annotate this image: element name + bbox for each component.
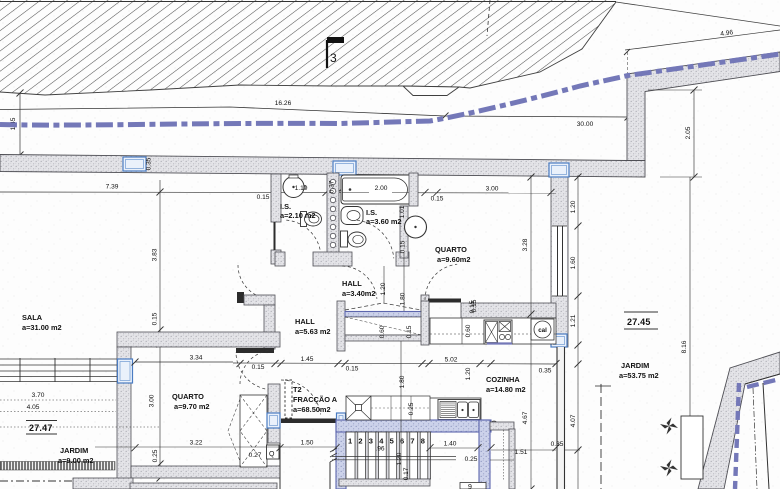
svg-text:1.45: 1.45 <box>301 356 314 363</box>
svg-text:0.25: 0.25 <box>465 456 478 463</box>
svg-text:a=2.10 m2: a=2.10 m2 <box>280 211 316 220</box>
svg-text:2.00: 2.00 <box>375 185 388 192</box>
svg-text:HALL: HALL <box>295 317 315 326</box>
svg-text:3.83: 3.83 <box>152 248 159 261</box>
svg-text:0.25: 0.25 <box>408 402 415 415</box>
svg-text:1.20: 1.20 <box>396 452 403 465</box>
svg-text:4.05: 4.05 <box>27 404 40 411</box>
svg-text:a=9.70 m2: a=9.70 m2 <box>174 402 210 411</box>
svg-text:8.16: 8.16 <box>681 340 688 353</box>
svg-text:0.27: 0.27 <box>249 452 262 459</box>
svg-text:9: 9 <box>468 484 472 489</box>
svg-text:a=9.00 m2: a=9.00 m2 <box>58 456 94 465</box>
svg-text:1.20: 1.20 <box>380 282 387 295</box>
svg-text:1.10: 1.10 <box>295 185 308 192</box>
svg-text:27.47: 27.47 <box>29 423 53 433</box>
svg-text:JARDIM: JARDIM <box>60 446 88 455</box>
svg-text:3: 3 <box>330 51 337 65</box>
svg-text:COZINHA: COZINHA <box>486 375 520 384</box>
svg-text:FRACÇÃO A: FRACÇÃO A <box>293 395 338 404</box>
svg-text:0.35: 0.35 <box>551 441 564 448</box>
svg-text:3.70: 3.70 <box>32 392 45 399</box>
svg-text:0.25: 0.25 <box>152 449 159 462</box>
svg-text:0.60: 0.60 <box>379 325 386 338</box>
svg-text:T2: T2 <box>293 385 302 394</box>
svg-text:3.00: 3.00 <box>486 186 499 193</box>
svg-text:QUARTO: QUARTO <box>435 245 467 254</box>
svg-text:1.50: 1.50 <box>301 440 314 447</box>
svg-text:I.S.: I.S. <box>366 208 377 217</box>
svg-text:3.28: 3.28 <box>522 238 529 251</box>
svg-text:0.17: 0.17 <box>403 467 410 480</box>
svg-text:4.67: 4.67 <box>522 411 529 424</box>
svg-text:0.15: 0.15 <box>471 299 478 312</box>
svg-text:1.20: 1.20 <box>465 367 472 380</box>
svg-text:a=31.00 m2: a=31.00 m2 <box>22 323 62 332</box>
svg-text:a=14.80 m2: a=14.80 m2 <box>486 385 526 394</box>
svg-text:27.45: 27.45 <box>627 317 651 327</box>
svg-text:5: 5 <box>390 437 394 446</box>
svg-text:a=68.50m2: a=68.50m2 <box>293 405 331 414</box>
svg-text:0.15: 0.15 <box>152 312 159 325</box>
svg-text:1.20: 1.20 <box>570 200 577 213</box>
svg-text:a=5.63 m2: a=5.63 m2 <box>295 327 331 336</box>
svg-text:0.37: 0.37 <box>329 180 336 193</box>
svg-text:3.34: 3.34 <box>190 355 203 362</box>
svg-text:8: 8 <box>421 437 425 446</box>
svg-text:1.80: 1.80 <box>399 375 406 388</box>
svg-text:1.21: 1.21 <box>570 314 577 327</box>
svg-text:.96: .96 <box>375 446 384 453</box>
svg-text:SALA: SALA <box>22 313 43 322</box>
svg-text:Q: Q <box>269 451 275 458</box>
svg-text:1.80: 1.80 <box>400 292 407 305</box>
svg-text:0.60: 0.60 <box>465 324 472 337</box>
svg-text:0.15: 0.15 <box>346 366 359 373</box>
svg-text:JARDIM: JARDIM <box>621 361 649 370</box>
svg-text:0.15: 0.15 <box>406 325 413 338</box>
svg-text:30.00: 30.00 <box>577 121 594 128</box>
svg-text:1.51: 1.51 <box>515 449 528 456</box>
svg-text:7: 7 <box>410 437 414 446</box>
svg-text:HALL: HALL <box>342 279 362 288</box>
svg-text:1.60: 1.60 <box>570 256 577 269</box>
svg-text:cal: cal <box>538 327 547 334</box>
svg-text:1.40: 1.40 <box>444 441 457 448</box>
svg-text:2.05: 2.05 <box>685 126 692 139</box>
svg-text:0.35: 0.35 <box>146 157 153 170</box>
svg-text:0.35: 0.35 <box>539 368 552 375</box>
svg-text:6: 6 <box>400 437 404 446</box>
svg-text:0.15: 0.15 <box>257 194 270 201</box>
svg-text:4.07: 4.07 <box>570 414 577 427</box>
svg-text:a=9.60m2: a=9.60m2 <box>437 255 471 264</box>
svg-text:7.39: 7.39 <box>106 184 119 191</box>
svg-text:16.26: 16.26 <box>275 100 292 107</box>
svg-text:0.15: 0.15 <box>400 240 407 253</box>
svg-text:0.15: 0.15 <box>431 196 444 203</box>
svg-text:0.15: 0.15 <box>252 364 265 371</box>
svg-text:a=3.60 m2: a=3.60 m2 <box>366 217 402 226</box>
svg-text:QUARTO: QUARTO <box>172 392 204 401</box>
svg-text:3.22: 3.22 <box>190 440 203 447</box>
svg-text:1: 1 <box>348 437 352 446</box>
svg-text:3: 3 <box>369 437 373 446</box>
svg-text:a=3.40m2: a=3.40m2 <box>342 289 376 298</box>
svg-text:5.02: 5.02 <box>445 357 458 364</box>
svg-text:a=53.75 m2: a=53.75 m2 <box>619 371 659 380</box>
svg-text:2: 2 <box>358 437 362 446</box>
svg-text:I.S.: I.S. <box>280 202 291 211</box>
svg-text:3.00: 3.00 <box>149 394 156 407</box>
